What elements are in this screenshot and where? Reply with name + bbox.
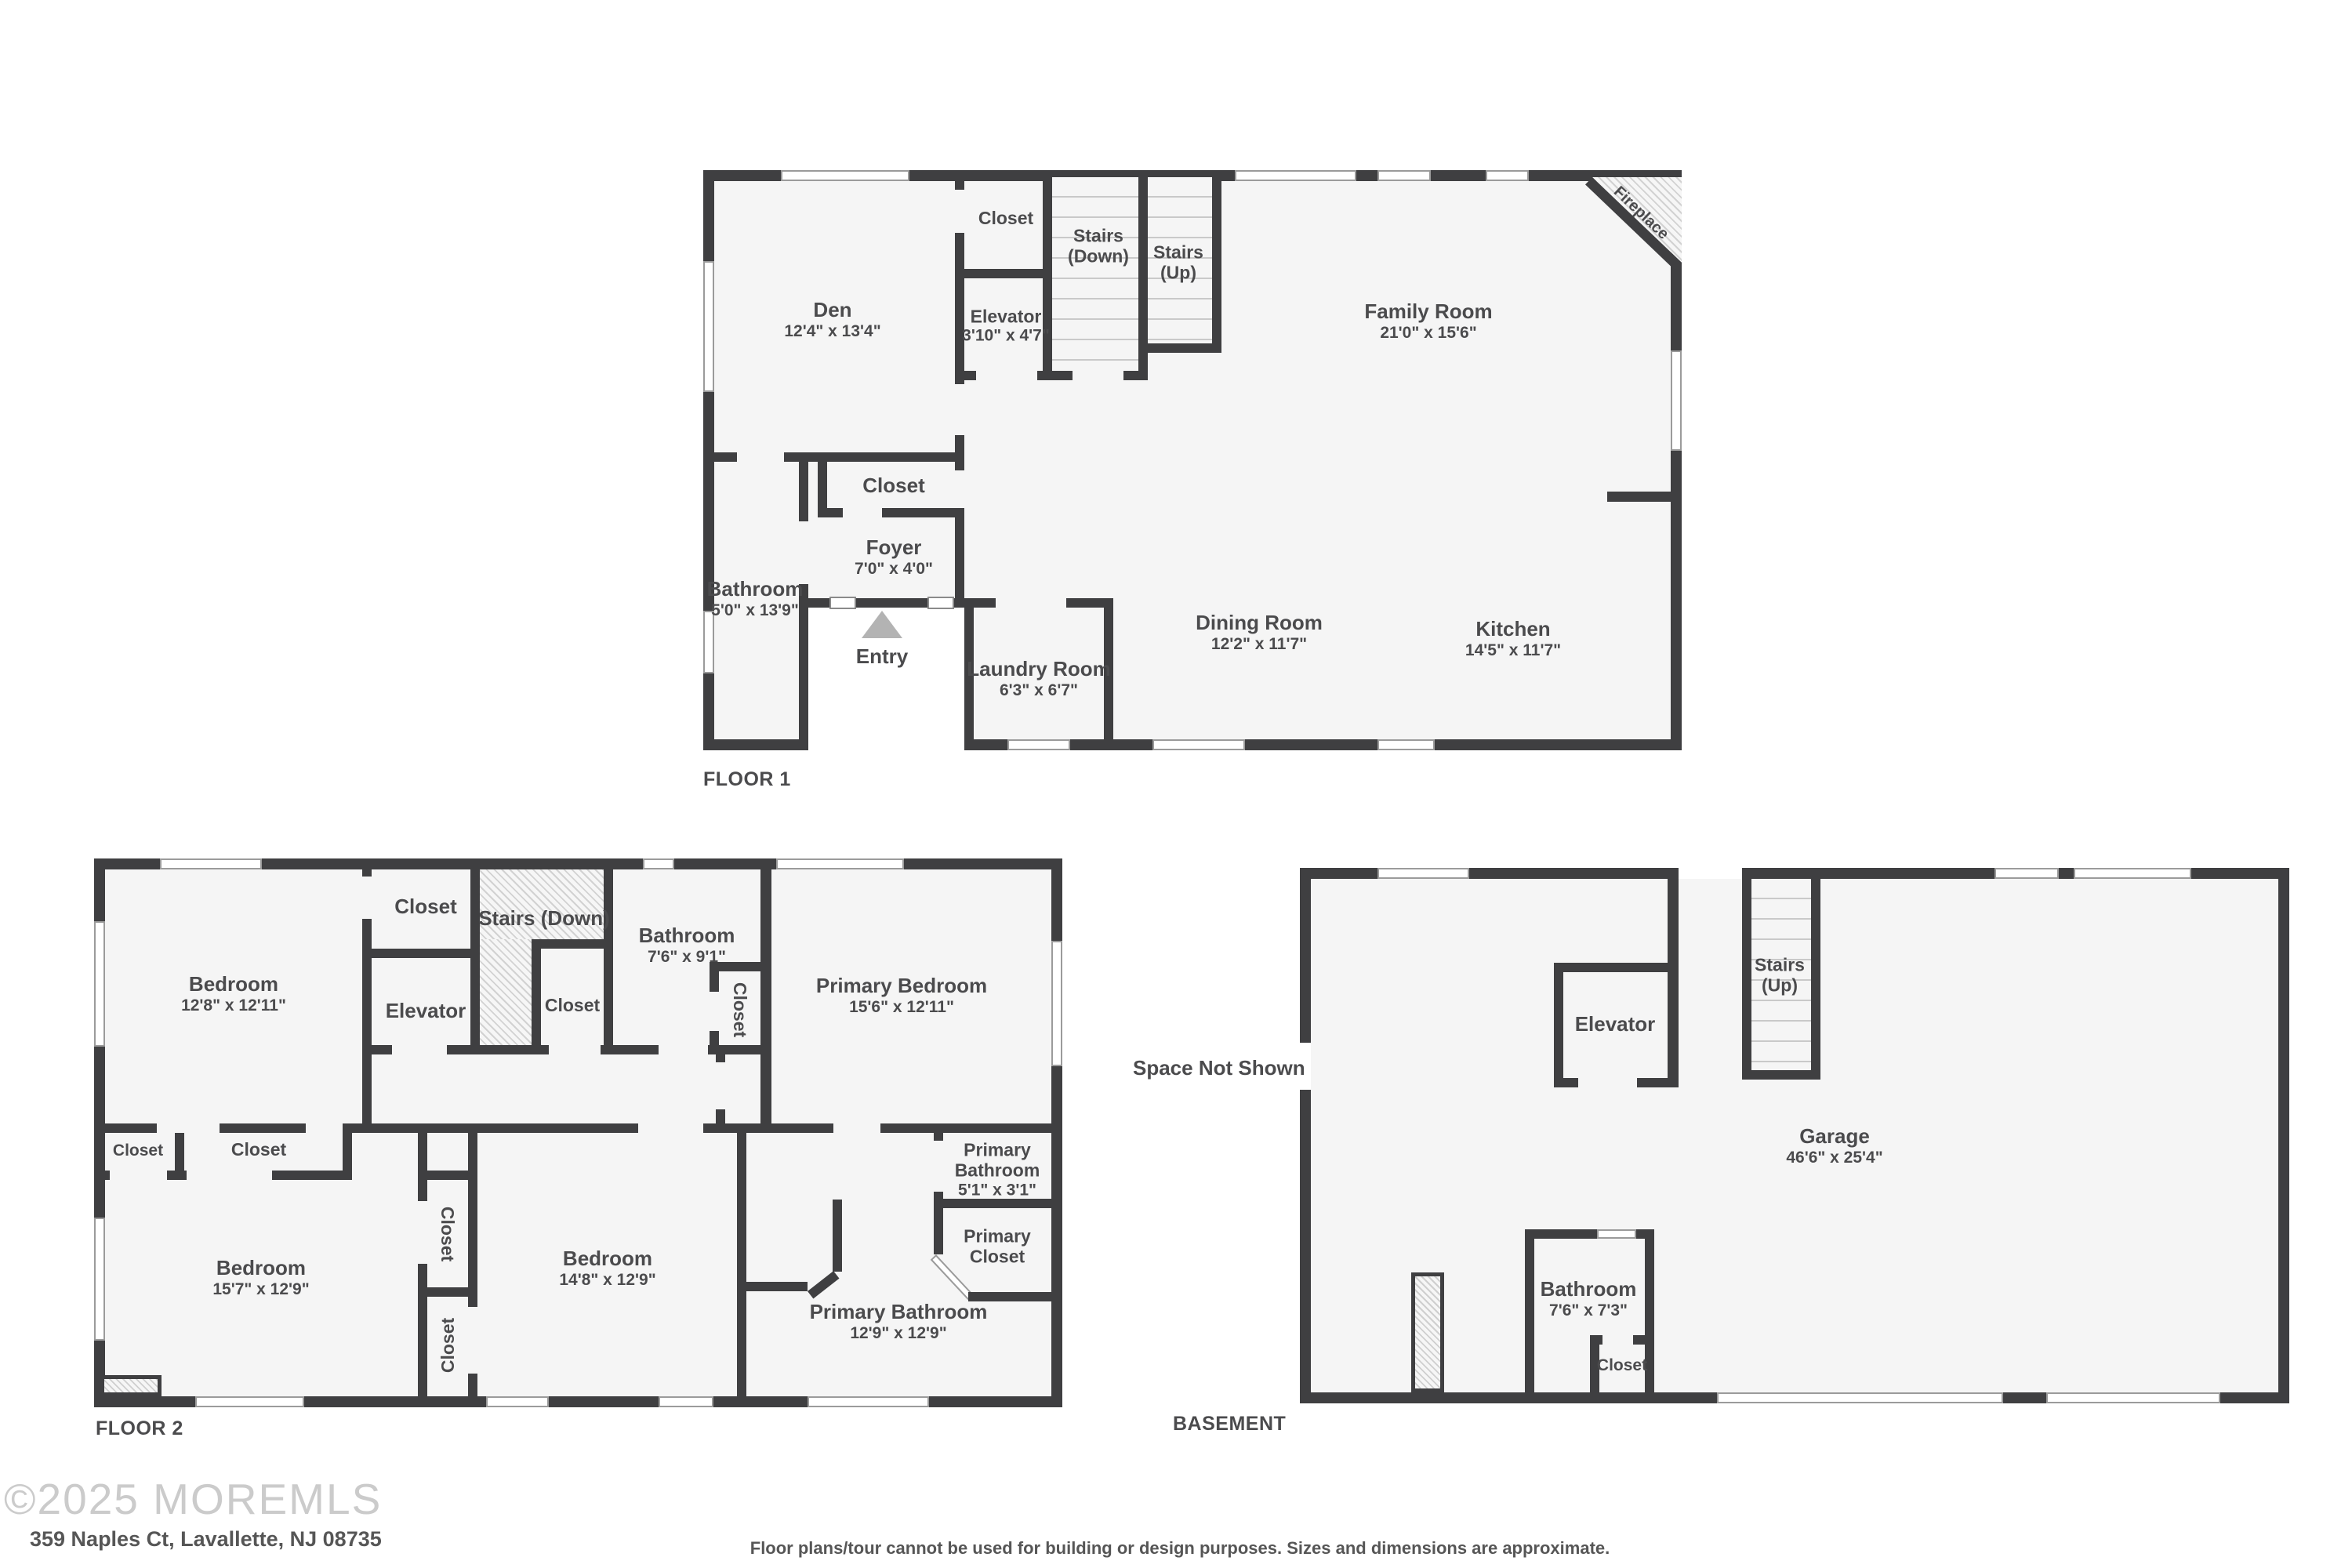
wall [1554,963,1563,1087]
wall [1633,1335,1645,1345]
wall [1742,868,1994,879]
room-label-garage: Garage46'6" x 25'4" [1786,1125,1882,1167]
basement-plan: Space Not Shown Elevator Stairs(Up) Gara… [0,0,2352,1568]
wall [1525,1229,1597,1239]
window [1377,868,1469,879]
floorplan-page: { "footer": { "copyright": "©2025 MOREML… [0,0,2352,1568]
wall [1300,1392,1717,1403]
room-label-closet-bsmt: Closet [1597,1356,1647,1375]
wall [1742,1070,1820,1080]
wall [2191,868,2289,879]
wall [1300,868,1311,1043]
wall [2278,868,2289,1403]
wall [1645,1229,1654,1403]
wall [1742,879,1751,1080]
wall [2059,868,2074,879]
room-label-elevator-bsmt: Elevator [1575,1013,1656,1036]
wall [1668,879,1679,1087]
wall-opening [1679,868,1742,879]
wall [2220,1392,2289,1403]
disclaimer-text: Floor plans/tour cannot be used for buil… [750,1538,1610,1559]
wall [1554,1078,1578,1087]
window [2074,868,2191,879]
wall [1554,963,1668,972]
wall [1300,868,1377,879]
room-label-bathroom-bsmt: Bathroom7'6" x 7'3" [1541,1278,1637,1320]
property-address: 359 Naples Ct, Lavallette, NJ 08735 [30,1527,382,1552]
room-label-stairs-up-bsmt: Stairs(Up) [1755,955,1805,996]
wall [2003,1392,2046,1403]
window [2046,1392,2220,1403]
window [1597,1229,1636,1239]
wall [1637,1078,1679,1087]
window [1717,1392,2003,1403]
wall [1469,868,1679,879]
wall [1811,879,1820,1080]
basement-title: BASEMENT [1173,1413,1286,1436]
wall [1525,1229,1534,1403]
wall [1599,1335,1602,1345]
window [1994,868,2059,879]
hatched-feature [1411,1272,1444,1392]
label-space-not-shown: Space Not Shown [1133,1057,1290,1080]
mls-watermark: ©2025 MOREMLS [4,1474,382,1524]
wall [1300,1090,1311,1403]
